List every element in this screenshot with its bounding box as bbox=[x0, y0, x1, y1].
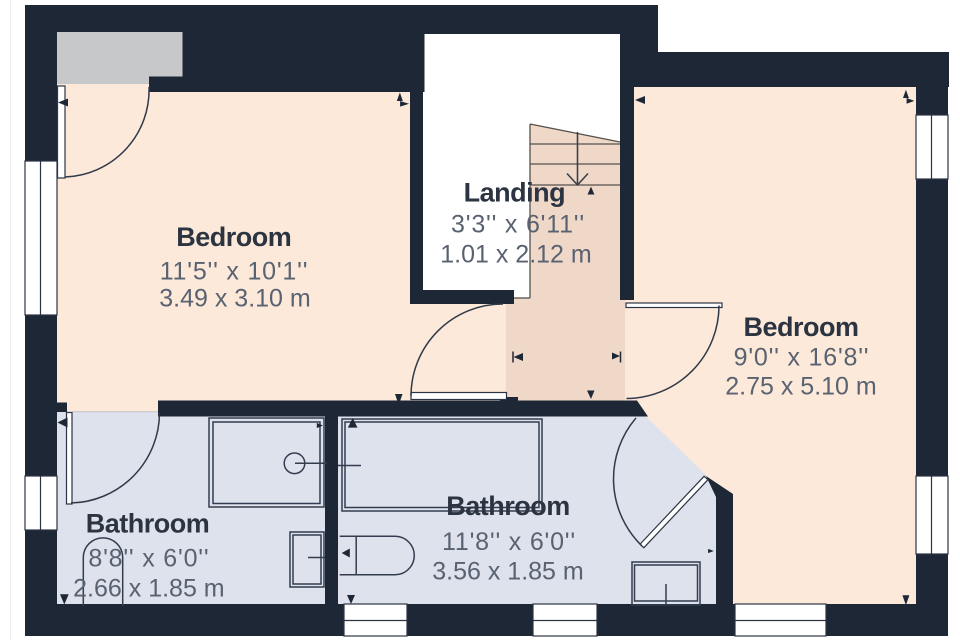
svg-text:Bedroom: Bedroom bbox=[743, 312, 858, 342]
svg-text:3'3'' x 6'11'': 3'3'' x 6'11'' bbox=[451, 211, 585, 239]
svg-text:8'8'' x 6'0'': 8'8'' x 6'0'' bbox=[88, 545, 209, 573]
svg-text:Bedroom: Bedroom bbox=[176, 222, 291, 252]
svg-text:2.66 x 1.85 m: 2.66 x 1.85 m bbox=[73, 575, 224, 603]
svg-text:3.56 x 1.85 m: 3.56 x 1.85 m bbox=[432, 558, 583, 586]
svg-text:9'0'' x 16'8'': 9'0'' x 16'8'' bbox=[734, 344, 870, 372]
svg-text:1.01 x 2.12 m: 1.01 x 2.12 m bbox=[440, 241, 591, 269]
svg-text:Bathroom: Bathroom bbox=[446, 491, 570, 521]
svg-text:Bathroom: Bathroom bbox=[86, 509, 210, 539]
svg-text:Landing: Landing bbox=[464, 178, 565, 208]
svg-text:3.49 x 3.10 m: 3.49 x 3.10 m bbox=[159, 285, 310, 313]
svg-text:11'5'' x 10'1'': 11'5'' x 10'1'' bbox=[160, 258, 309, 286]
svg-text:2.75 x 5.10 m: 2.75 x 5.10 m bbox=[725, 373, 876, 401]
svg-text:11'8'' x 6'0'': 11'8'' x 6'0'' bbox=[442, 528, 576, 556]
